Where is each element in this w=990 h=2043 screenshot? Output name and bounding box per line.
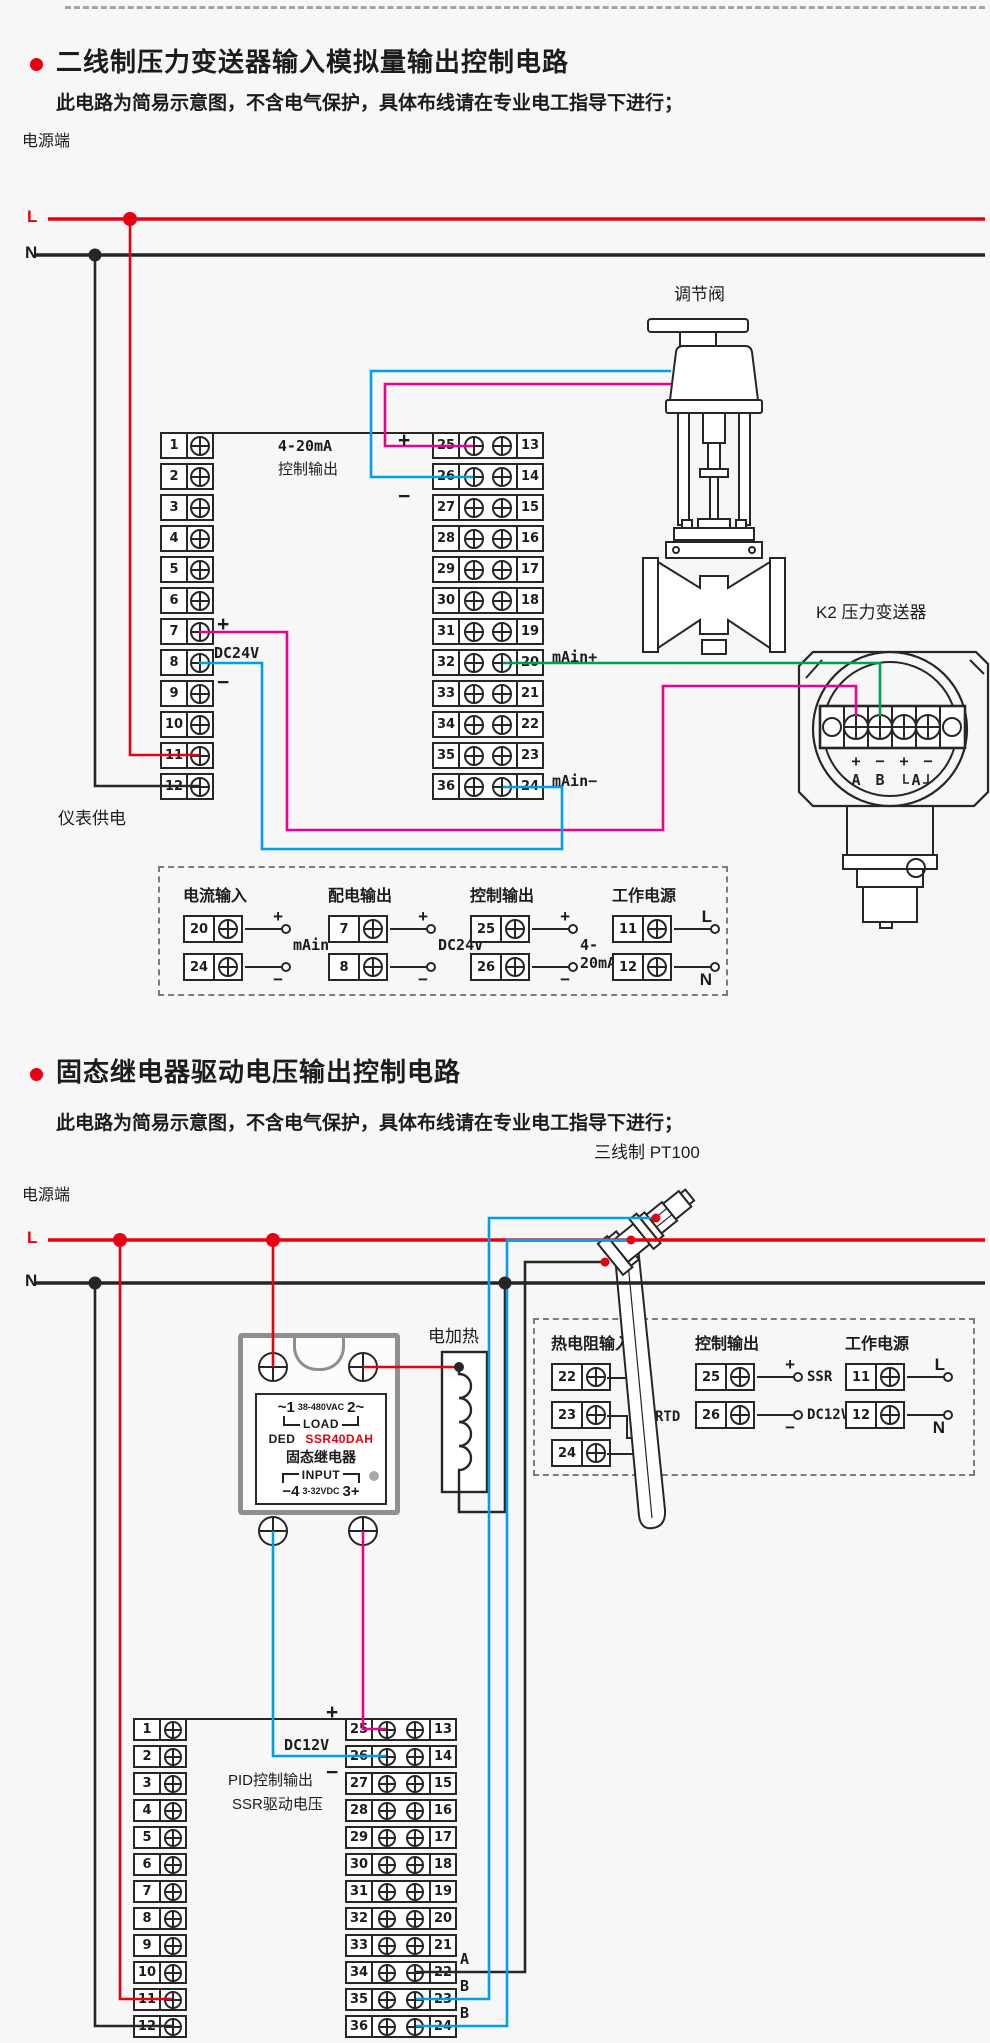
terminal-row: 3220 [432,649,544,676]
terminal-number: 10 [135,1963,161,1982]
screw-icon [586,1405,606,1425]
terminal-number: 5 [162,558,188,581]
ssr-term2: 2~ [347,1399,364,1416]
terminal-number: 14 [516,465,542,488]
pin-line: L [907,1376,945,1378]
legend-group-label: 4-20mA [580,936,616,972]
terminal-row: 2513 [432,432,544,459]
legend-row: 26−DC12V [695,1400,849,1430]
terminal-number: 12 [135,2017,161,2036]
polarity-mark: − [560,971,570,988]
legend-group-title: 电流输入 [183,882,283,906]
terminal-number: 21 [516,682,542,705]
terminal-row: 1 [133,1718,187,1741]
ssr-model: SSR40DAH [305,1432,373,1446]
s1-wire-valve-minus [371,371,671,477]
terminal-row: 6 [160,587,214,614]
terminal-row: 7 [133,1880,187,1903]
s1-power-label: 电源端 [22,132,70,152]
pin-line: N [907,1414,945,1416]
legend-row: 12N [845,1400,945,1430]
terminal-number: 6 [162,589,188,612]
section1-bullet [30,58,43,71]
section2-title: 固态继电器驱动电压输出控制电路 [56,1056,461,1089]
screw-icon [730,1405,750,1425]
terminal-number: 2 [162,465,188,488]
s2-l-label: L [27,1227,37,1248]
terminal-row: 3119 [345,1880,457,1903]
legend-row: 12N [612,952,712,982]
legend-row: 8− [328,952,428,982]
legend-group-title: 热电阻输入 [551,1330,631,1354]
legend-group-current-input: 电流输入20+24−mAin [183,882,283,982]
screw-icon [880,1367,900,1387]
legend-row: 11L [845,1362,945,1392]
s2-plus-2526: + [326,1700,338,1726]
pin-end-icon [793,1410,803,1420]
legend-group-title: 配电输出 [328,882,428,906]
pin-end-icon [426,962,436,972]
terminal-row: 8 [160,649,214,676]
s2-minus-2526: − [326,1760,338,1786]
tx-letter-a: A [851,771,860,789]
polarity-mark: N [700,971,712,988]
terminal-row: 7 [160,618,214,645]
ssr-load-label: LOAD [303,1417,339,1431]
polarity-mark: + [560,908,570,925]
pin-end-icon [426,924,436,934]
screw-icon [647,919,667,939]
terminal-number: 22 [553,1365,583,1389]
s2-n-label: N [25,1270,37,1291]
terminal-number: 25 [697,1365,727,1389]
terminal-number: 8 [135,1909,161,1928]
terminal-number: 26 [347,1747,373,1766]
polarity-mark: − [785,1419,795,1436]
terminal-row: 2917 [432,556,544,583]
polarity-mark: + [785,1356,795,1373]
s1-n-label: N [25,242,37,263]
terminal-number: 28 [347,1801,373,1820]
pin-line: + [532,928,570,930]
terminal-number: 15 [429,1774,455,1793]
rtd-symbol: RTD [607,1363,707,1483]
terminal-row: 1 [160,432,214,459]
legend-group-supply-output: 配电输出7+8−DC24V [328,882,428,982]
terminal-number: 21 [429,1936,455,1955]
terminal-row: 3523 [345,1988,457,2011]
terminal-number: 34 [434,713,460,736]
screw-icon [505,957,525,977]
terminal-number: 27 [347,1774,373,1793]
terminal-row: 3422 [345,1961,457,1984]
legend-group-title: 工作电源 [845,1330,945,1354]
terminal-number: 14 [429,1747,455,1766]
screw-icon [218,919,238,939]
terminal-number: 23 [429,1990,455,2009]
terminal-number: 4 [162,527,188,550]
terminal-number: 12 [847,1403,877,1427]
tx-mark-3: + [899,752,908,770]
legend-row: 25+ [470,914,570,944]
terminal-row: 3321 [432,680,544,707]
terminal-number: 8 [330,955,360,979]
input-bracket-left [282,1473,299,1483]
terminal-number: 17 [516,558,542,581]
terminal-number: 25 [434,434,460,457]
terminal-number: 1 [162,434,188,457]
terminal-number: 4 [135,1801,161,1820]
terminal-row: 4 [160,525,214,552]
ssr-screw-4 [258,1516,288,1546]
s1-main-minus-label: mAin− [552,772,597,791]
terminal-number: 7 [162,620,188,643]
terminal-number: 32 [347,1909,373,1928]
legend-row: 25+SSR [695,1362,849,1392]
terminal-row: 6 [133,1853,187,1876]
terminal-row: 10 [133,1961,187,1984]
pin-line: − [532,966,570,968]
terminal-row: 5 [133,1826,187,1849]
terminal-number: 3 [162,496,188,519]
terminal-row: 2816 [432,525,544,552]
s1-plus-2526: + [398,428,410,454]
legend-row-label: DC12V [807,1407,849,1423]
pin-line: L [674,928,712,930]
terminal-number: 6 [135,1855,161,1874]
legend-group-work-power: 工作电源11L12N [612,882,712,982]
legend-group-rtd-input: 热电阻输入222324RTD [551,1330,631,1468]
terminal-row: 3 [160,494,214,521]
polarity-mark: + [273,908,283,925]
ssr-term4: −4 [282,1483,299,1500]
pin-end-icon [793,1372,803,1382]
screw-icon [730,1367,750,1387]
ssr-screw-2 [348,1352,378,1382]
control-valve-drawing [643,319,785,654]
ssr-vdc-rating: 3-32VDC [302,1486,339,1496]
legend-group-title: 工作电源 [612,882,712,906]
terminal-number: 20 [429,1909,455,1928]
screw-icon [586,1367,606,1387]
pin-end-icon [568,962,578,972]
s2-heater-label: 电加热 [428,1326,479,1347]
terminal-number: 31 [347,1882,373,1901]
s1-l-label: L [27,206,37,227]
terminal-row: 2 [160,463,214,490]
terminal-number: 25 [472,917,502,941]
legend-group-label: mAin [293,936,329,954]
legend-group-control-output-2: 控制输出25+SSR26−DC12V [695,1330,849,1430]
terminal-row: 3220 [345,1907,457,1930]
terminal-number: 28 [434,527,460,550]
terminal-number: 12 [614,955,644,979]
polarity-mark: L [935,1356,945,1373]
terminal-row: 2816 [345,1799,457,1822]
load-bracket-right [342,1416,359,1426]
s2-dc12v-label: DC12V [284,1736,329,1755]
terminal-number: 5 [135,1828,161,1847]
s1-valve-label: 调节阀 [674,284,725,305]
terminal-row: 5 [160,556,214,583]
screw-icon [218,957,238,977]
terminal-number: 7 [135,1882,161,1901]
terminal-number: 33 [347,1936,373,1955]
polarity-mark: N [933,1419,945,1436]
s2-wire-a-label: A [460,1950,469,1969]
terminal-number: 1 [135,1720,161,1739]
terminal-number: 7 [330,917,360,941]
heater-drawing [442,1352,487,1492]
pin-end-icon [943,1372,953,1382]
screw-icon [647,957,667,977]
input-bracket-right [343,1473,360,1483]
pin-line: + [245,928,283,930]
s1-minus-78: − [217,670,229,696]
terminal-number: 12 [162,775,188,798]
screw-icon [505,919,525,939]
s1-out-ctrl-label: 控制输出 [278,461,338,480]
terminal-number: 22 [429,1963,455,1982]
terminal-number: 24 [185,955,215,979]
terminal-row: 3 [133,1772,187,1795]
polarity-mark: + [418,908,428,925]
terminal-number: 13 [516,434,542,457]
legend-row-label: SSR [807,1369,832,1385]
legend-row: 7+ [328,914,428,944]
terminal-number: 27 [434,496,460,519]
terminal-row: 12 [160,773,214,800]
terminal-row: 3018 [345,1853,457,1876]
terminal-row: 2614 [345,1745,457,1768]
terminal-number: 8 [162,651,188,674]
terminal-number: 23 [553,1403,583,1427]
terminal-row: 2 [133,1745,187,1768]
legend-group-work-power-2: 工作电源11L12N [845,1330,945,1430]
terminal-number: 16 [429,1801,455,1820]
wiring-diagram-page: + − + − A B A [0,0,990,2043]
section1-title: 二线制压力变送器输入模拟量输出控制电路 [56,46,569,79]
terminal-number: 17 [429,1828,455,1847]
terminal-number: 36 [347,2017,373,2036]
s2-pt100-label: 三线制 PT100 [594,1142,700,1163]
ssr-term3: 3+ [343,1483,360,1500]
terminal-row: 3624 [432,773,544,800]
polarity-mark: − [418,971,428,988]
terminal-row: 3523 [432,742,544,769]
legend-group-title: 控制输出 [695,1330,849,1354]
terminal-number: 11 [162,744,188,767]
terminal-row: 10 [160,711,214,738]
ssr-mount-notch [293,1336,345,1371]
terminal-row: 2715 [345,1772,457,1795]
s1-transmitter-label: K2 压力变送器 [816,602,927,623]
terminal-number: 24 [553,1441,583,1465]
ssr-screw-1 [258,1352,288,1382]
terminal-row: 9 [133,1934,187,1957]
ssr-vac-rating: 38-480VAC [298,1402,344,1412]
terminal-number: 18 [429,1855,455,1874]
s2-pid-label-2: SSR驱动电压 [232,1796,323,1815]
s2-wire-b2-label: B [460,2004,469,2023]
terminal-row: 8 [133,1907,187,1930]
pin-end-icon [281,924,291,934]
s2-power-label: 电源端 [22,1186,70,1206]
terminal-number: 9 [135,1936,161,1955]
terminal-number: 26 [434,465,460,488]
terminal-row: 2513 [345,1718,457,1741]
s2-wire-heater-n [459,1283,505,1512]
s1-dc24v-label: DC24V [214,644,259,663]
s2-wire-b1-label: B [460,1977,469,1996]
pin-end-icon [710,924,720,934]
terminal-number: 13 [429,1720,455,1739]
terminal-row: 3119 [432,618,544,645]
ssr-name: 固态继电器 [286,1447,356,1467]
terminal-number: 11 [135,1990,161,2009]
terminal-number: 15 [516,496,542,519]
s2-wire-ssr-input-plus [363,1531,386,1729]
terminal-number: 33 [434,682,460,705]
s1-minus-2526: − [398,484,410,510]
ssr-input-label: INPUT [302,1468,341,1482]
pin-line: − [390,966,428,968]
terminal-number: 32 [434,651,460,674]
terminal-row: 3624 [345,2015,457,2038]
terminal-number: 10 [162,713,188,736]
legend-group-control-output: 控制输出25+26−4-20mA [470,882,570,982]
s1-main-plus-label: mAin+ [552,648,597,667]
terminal-number: 16 [516,527,542,550]
terminal-number: 19 [516,620,542,643]
terminal-number: 11 [614,917,644,941]
terminal-number: 31 [434,620,460,643]
s1-plus-78: + [217,612,229,638]
terminal-number: 35 [434,744,460,767]
terminal-row: 12 [133,2015,187,2038]
terminal-row: 3422 [432,711,544,738]
ssr-term1: ~1 [278,1399,295,1416]
tx-mark-4: − [923,752,932,770]
terminal-number: 25 [347,1720,373,1739]
cropped-dashed-border [65,6,985,9]
ssr-brand: DED [269,1432,296,1446]
pin-end-icon [943,1410,953,1420]
terminal-number: 34 [347,1963,373,1982]
terminal-number: 11 [847,1365,877,1389]
terminal-number: 18 [516,589,542,612]
terminal-number: 9 [162,682,188,705]
terminal-number: 19 [429,1882,455,1901]
terminal-number: 23 [516,744,542,767]
s1-out-current-label: 4-20mA [255,437,355,456]
polarity-mark: − [273,971,283,988]
terminal-number: 3 [135,1774,161,1793]
tx-mark-1: + [851,752,860,770]
terminal-number: 30 [347,1855,373,1874]
ssr-screw-3 [348,1516,378,1546]
section2-subtitle: 此电路为简易示意图，不含电气保护，具体布线请在专业电工指导下进行； [56,1112,683,1136]
rtd-label: RTD [655,1409,680,1425]
pin-line: N [674,966,712,968]
terminal-row: 2614 [432,463,544,490]
section1-subtitle: 此电路为简易示意图，不含电气保护，具体布线请在专业电工指导下进行； [56,92,683,116]
terminal-row: 2917 [345,1826,457,1849]
screw-icon [363,957,383,977]
legend-row: 20+ [183,914,283,944]
ssr-led-icon [369,1471,379,1481]
terminal-number: 20 [516,651,542,674]
tx-letter-b: B [875,771,884,789]
pin-end-icon [710,962,720,972]
terminal-number: 35 [347,1990,373,2009]
legend-row: 24− [183,952,283,982]
pin-line: + [390,928,428,930]
section2-bullet [30,1068,43,1081]
pin-line: − [245,966,283,968]
terminal-number: 26 [472,955,502,979]
pin-end-icon [281,962,291,972]
terminal-number: 24 [516,775,542,798]
terminal-number: 26 [697,1403,727,1427]
terminal-number: 2 [135,1747,161,1766]
tx-letter-a2: A [911,771,920,789]
legend-group-title: 控制输出 [470,882,570,906]
terminal-row: 3321 [345,1934,457,1957]
s1-wire-main-plus [503,663,880,716]
terminal-number: 29 [434,558,460,581]
tx-mark-2: − [875,752,884,770]
pin-line: + [757,1376,795,1378]
terminal-row: 9 [160,680,214,707]
screw-icon [586,1443,606,1463]
screw-icon [363,919,383,939]
pin-line: − [757,1414,795,1416]
terminal-row: 2715 [432,494,544,521]
terminal-number: 22 [516,713,542,736]
terminal-number: 30 [434,589,460,612]
pin-end-icon [568,924,578,934]
terminal-number: 29 [347,1828,373,1847]
polarity-mark: L [702,908,712,925]
terminal-row: 11 [133,1988,187,2011]
load-bracket-left [283,1416,300,1426]
s1-meter-supply-label: 仪表供电 [58,808,126,829]
terminal-number: 36 [434,775,460,798]
terminal-number: 24 [429,2017,455,2036]
pressure-transmitter-drawing: + − + − A B A [799,652,988,928]
terminal-number: 20 [185,917,215,941]
ssr-label-panel: ~1 38-480VAC 2~ LOAD DED SSR40DAH 固态继电器 … [255,1393,387,1505]
terminal-row: 11 [160,742,214,769]
terminal-row: 3018 [432,587,544,614]
legend-row: 26− [470,952,570,982]
terminal-row: 4 [133,1799,187,1822]
legend-row: 11L [612,914,712,944]
s2-pid-label-1: PID控制输出 [228,1772,313,1791]
screw-icon [880,1405,900,1425]
